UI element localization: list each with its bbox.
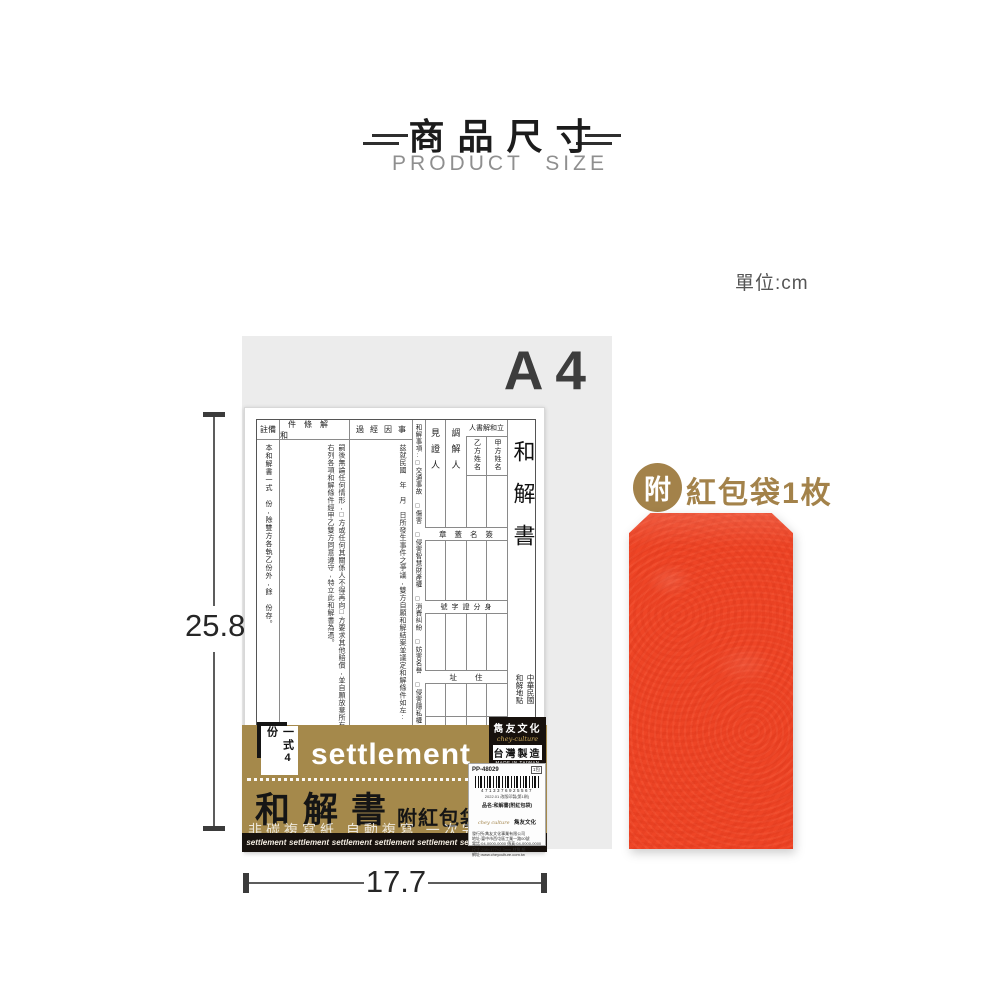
- brand-english: settlement: [300, 738, 482, 772]
- form-parties-divider: [466, 475, 507, 476]
- envelope-count-label: 紅包袋1枚: [686, 468, 833, 512]
- strip-word: settlement: [289, 838, 329, 847]
- width-marker-line-right: [428, 882, 541, 884]
- made-in-taiwan-label: 台灣製造: [493, 745, 542, 760]
- maker-name: 雋友文化: [491, 720, 544, 735]
- form-row-id-number: 號字證分身: [425, 600, 507, 614]
- width-marker-right-cap: [541, 873, 547, 893]
- form-parties-header: 人書解和立: [466, 420, 507, 437]
- form-mediator-label: 調解人: [450, 428, 463, 476]
- form-title: 和解書: [507, 440, 539, 566]
- included-badge-text: 附: [644, 468, 671, 507]
- label-info-line: 網址:www.cheyculture.com.tw: [472, 852, 542, 857]
- form-conditions-header: 件條解和: [280, 420, 349, 440]
- copies-label: 一式4份: [264, 726, 296, 775]
- package-band: 一式4份 settlement 和解書 附紅包袋 非碳複寫紙 自動複寫 一次完成…: [242, 725, 547, 852]
- form-party-b-label: 乙方姓名: [472, 439, 482, 471]
- strip-word: settlement: [246, 838, 286, 847]
- form-place-line: 和解地點: [515, 674, 524, 704]
- form-course-header: 過經因事: [350, 420, 412, 440]
- barcode-digits: 4713376925567: [472, 788, 542, 793]
- form-remarks-header: 註備: [257, 420, 279, 440]
- pack-count: 1包: [531, 766, 542, 774]
- height-value: 25.8: [185, 608, 245, 644]
- maker-script-logo: chey-culture: [491, 735, 544, 743]
- page-subtitle: PRODUCT SIZE: [0, 152, 1000, 176]
- product-size-section: 商品尺寸 PRODUCT SIZE 單位:cm A4 註備 本和解書一式 份,除…: [0, 0, 1000, 1000]
- copies-box: 一式4份: [261, 726, 298, 775]
- strip-word: settlement: [374, 838, 414, 847]
- label-info-lines: 發行所:雋友文化事業有限公司 地址:臺中市西屯區工業一路00號 電話:04-00…: [472, 831, 542, 857]
- width-value: 17.7: [363, 864, 429, 900]
- height-marker-bottom-cap: [203, 826, 225, 831]
- strip-word: settlement: [332, 838, 372, 847]
- strip-word: settlement: [417, 838, 457, 847]
- form-row-address: 址住: [425, 670, 507, 684]
- red-envelope-body: [629, 513, 793, 849]
- label-brand-name: 雋友文化: [514, 820, 536, 826]
- dotted-divider: [247, 778, 469, 781]
- unit-label: 單位:cm: [735, 268, 809, 295]
- included-badge: 附: [633, 463, 682, 512]
- height-marker-line-lower: [213, 652, 215, 826]
- form-witness-label: 見證人: [429, 428, 442, 476]
- maker-box: 雋友文化 chey-culture 台灣製造 MADE IN TAIWAN: [489, 717, 546, 767]
- sku-code: PP-48029: [472, 767, 499, 773]
- barcode-label: PP-48029 1包 4713376925567 2022.01 改版印製(第…: [468, 763, 546, 846]
- width-marker-line-left: [249, 882, 364, 884]
- label-brand-script: chey culture: [478, 820, 510, 826]
- label-product-line: 品名:和解書(附紅包袋): [472, 802, 542, 809]
- form-party-a-label: 甲方姓名: [492, 439, 502, 471]
- paper-size-label: A4: [504, 338, 598, 402]
- label-info-line: 電話:04-0000-0000 傳真:04-0000-0000: [472, 841, 542, 846]
- label-note-line: 2022.01 改版印製(第1刷): [472, 794, 542, 800]
- red-envelope: [629, 513, 793, 849]
- height-marker-line-upper: [213, 417, 215, 606]
- form-era-line: 中華民國: [526, 674, 535, 704]
- barcode: [475, 776, 539, 788]
- form-date-place: 中華民國 和解地點: [513, 674, 535, 704]
- form-row-signature: 章蓋名簽: [425, 527, 507, 541]
- label-brand-row: chey culture 雋友文化: [472, 811, 542, 829]
